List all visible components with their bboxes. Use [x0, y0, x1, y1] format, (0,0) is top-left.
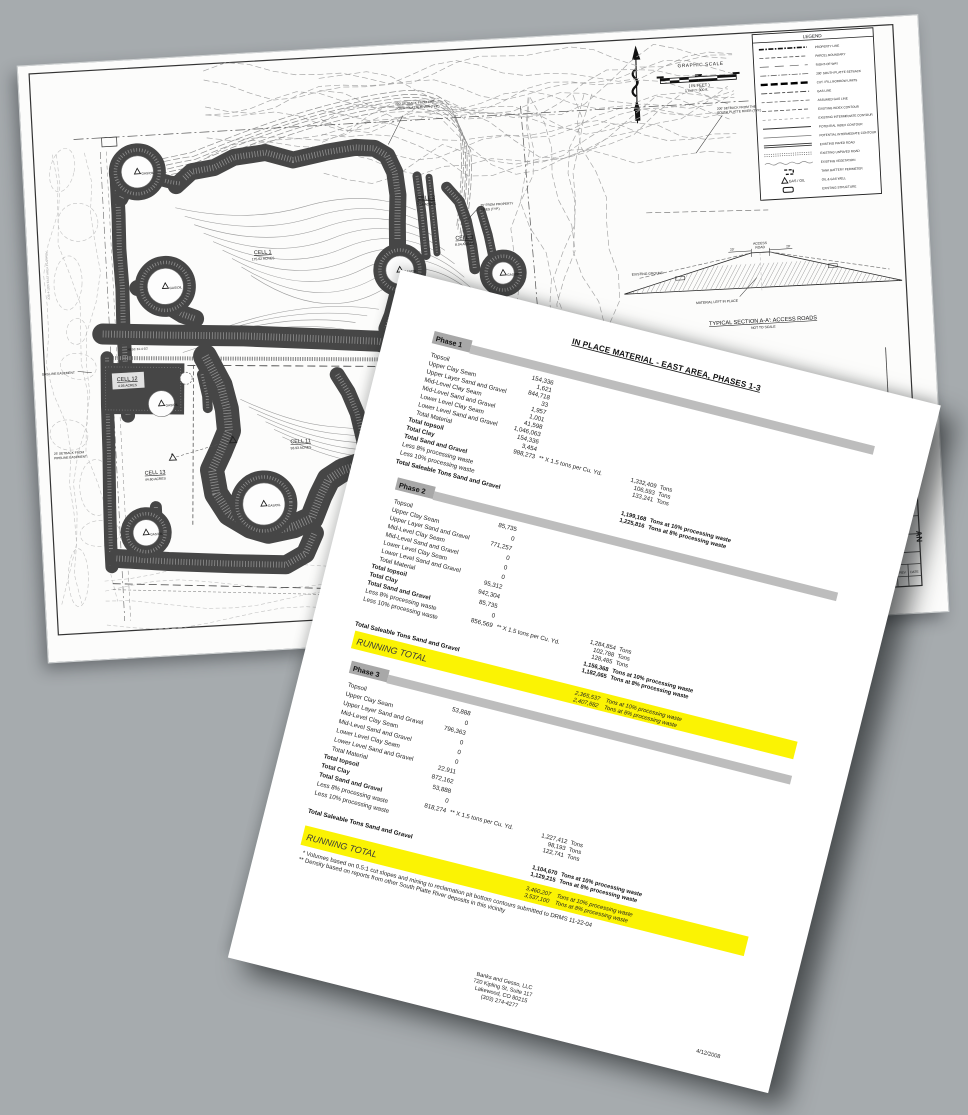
svg-text:4/12/2008: 4/12/2008	[695, 1048, 721, 1060]
svg-text:53,888: 53,888	[451, 706, 472, 718]
svg-text:85,735: 85,735	[478, 599, 499, 611]
svg-text:JOB 4-1205 EAST AREA PLAN RE: JOB 4-1205 EAST AREA PLAN REV	[44, 251, 51, 300]
svg-text:EXISTING GROUND: EXISTING GROUND	[632, 271, 664, 277]
svg-text:** X 1.5 tons per Cu. Yd.: ** X 1.5 tons per Cu. Yd.	[538, 456, 603, 478]
svg-text:CELL 3: CELL 3	[455, 235, 473, 242]
svg-text:AN: AN	[914, 530, 924, 542]
svg-text:REV: REV	[899, 570, 907, 574]
svg-text:0: 0	[464, 720, 470, 728]
svg-text:93.93 ACRES: 93.93 ACRES	[290, 445, 312, 450]
svg-text:CELL 1: CELL 1	[254, 249, 272, 256]
svg-text:PIPELINE EASEMENT: PIPELINE EASEMENT	[54, 455, 87, 461]
svg-text:GAS/OIL: GAS/OIL	[507, 272, 520, 277]
svg-text:GAS/OIL: GAS/OIL	[169, 285, 182, 290]
svg-text:20': 20'	[730, 247, 735, 251]
svg-text:175.62 ACRES: 175.62 ACRES	[252, 256, 276, 261]
svg-text:GAS/OIL: GAS/OIL	[165, 403, 178, 408]
svg-text:MATERIAL LEFT IN PLACE: MATERIAL LEFT IN PLACE	[696, 299, 739, 305]
svg-text:GAS/OIL: GAS/OIL	[141, 171, 154, 176]
svg-text:** X 1.5 tons per Cu. Yd.: ** X 1.5 tons per Cu. Yd.	[449, 810, 514, 832]
svg-text:NOT TO SCALE: NOT TO SCALE	[751, 325, 776, 330]
svg-text:0: 0	[500, 574, 506, 582]
svg-text:GAS/OIL: GAS/OIL	[268, 503, 281, 508]
svg-text:20': 20'	[786, 244, 791, 248]
svg-text:53,888: 53,888	[432, 784, 453, 796]
svg-text:CELL 11: CELL 11	[290, 438, 311, 445]
svg-text:85,735: 85,735	[498, 522, 519, 534]
svg-text:GRAPHIC SCALE: GRAPHIC SCALE	[677, 61, 723, 70]
svg-text:GAS LINE: GAS LINE	[817, 88, 831, 93]
svg-text:DATE: DATE	[910, 570, 918, 574]
svg-text:LINES (TYP.): LINES (TYP.)	[481, 207, 500, 212]
svg-text:0: 0	[503, 564, 509, 572]
svg-text:0: 0	[459, 739, 465, 747]
svg-text:NESC 31-4-1/2: NESC 31-4-1/2	[128, 346, 149, 351]
svg-text:818,274: 818,274	[424, 802, 448, 814]
svg-text:0: 0	[505, 554, 511, 562]
svg-text:GAS/OIL: GAS/OIL	[150, 532, 163, 537]
svg-text:796,363: 796,363	[443, 725, 467, 737]
svg-text:CELL 13: CELL 13	[145, 470, 166, 477]
svg-text:ROAD: ROAD	[755, 245, 766, 250]
svg-text:0: 0	[456, 749, 462, 757]
svg-text:0: 0	[510, 535, 516, 543]
svg-text:CELL 2: CELL 2	[417, 195, 435, 202]
svg-text:0: 0	[491, 612, 497, 620]
svg-text:** X 1.5 tons per Cu. Yd.: ** X 1.5 tons per Cu. Yd.	[496, 624, 561, 646]
svg-text:0: 0	[454, 758, 460, 766]
svg-text:0: 0	[444, 797, 450, 805]
svg-text:CELL 12: CELL 12	[117, 376, 138, 383]
svg-text:GAS LINE EASEMENT: GAS LINE EASEMENT	[42, 371, 75, 377]
svg-text:44.60 ACRES: 44.60 ACRES	[145, 477, 167, 482]
